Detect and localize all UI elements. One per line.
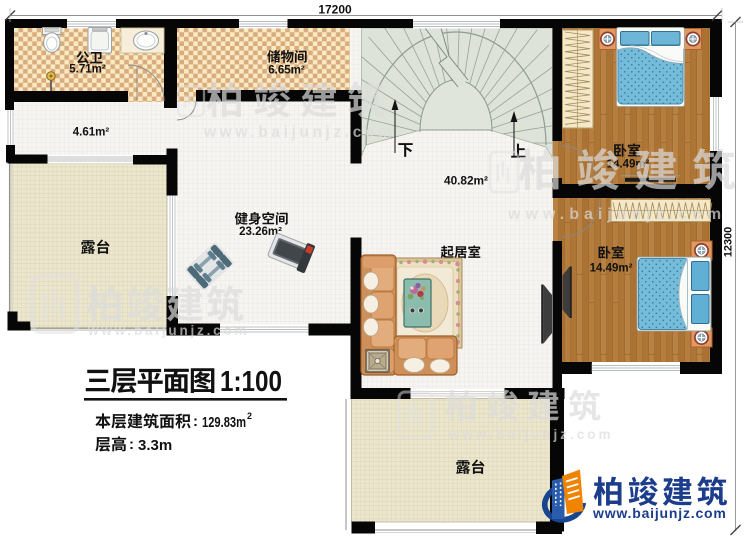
svg-text:5.71m²: 5.71m² — [69, 64, 106, 76]
svg-text:www.baijunjz.com: www.baijunjz.com — [87, 323, 249, 338]
svg-text:www.baijunjz.com: www.baijunjz.com — [448, 427, 614, 442]
svg-text:3.3m: 3.3m — [138, 437, 172, 454]
svg-text:17200: 17200 — [318, 3, 352, 17]
svg-text:40.82m²: 40.82m² — [444, 174, 488, 188]
svg-text:6.65m²: 6.65m² — [268, 65, 305, 77]
svg-text:www.baijunjz.com: www.baijunjz.com — [592, 505, 727, 521]
svg-text::: : — [193, 413, 198, 430]
svg-text:4.61m²: 4.61m² — [73, 127, 110, 139]
svg-text:14.49m²: 14.49m² — [590, 263, 633, 275]
svg-text:12300: 12300 — [723, 227, 735, 258]
svg-text::: : — [129, 436, 134, 453]
svg-text:1:100: 1:100 — [220, 366, 282, 398]
svg-text:2: 2 — [247, 411, 252, 421]
svg-text:www.baijunjz.com: www.baijunjz.com — [507, 206, 726, 223]
svg-text:www.baijunjz.com: www.baijunjz.com — [203, 124, 395, 141]
svg-text:129.83m: 129.83m — [202, 414, 246, 431]
